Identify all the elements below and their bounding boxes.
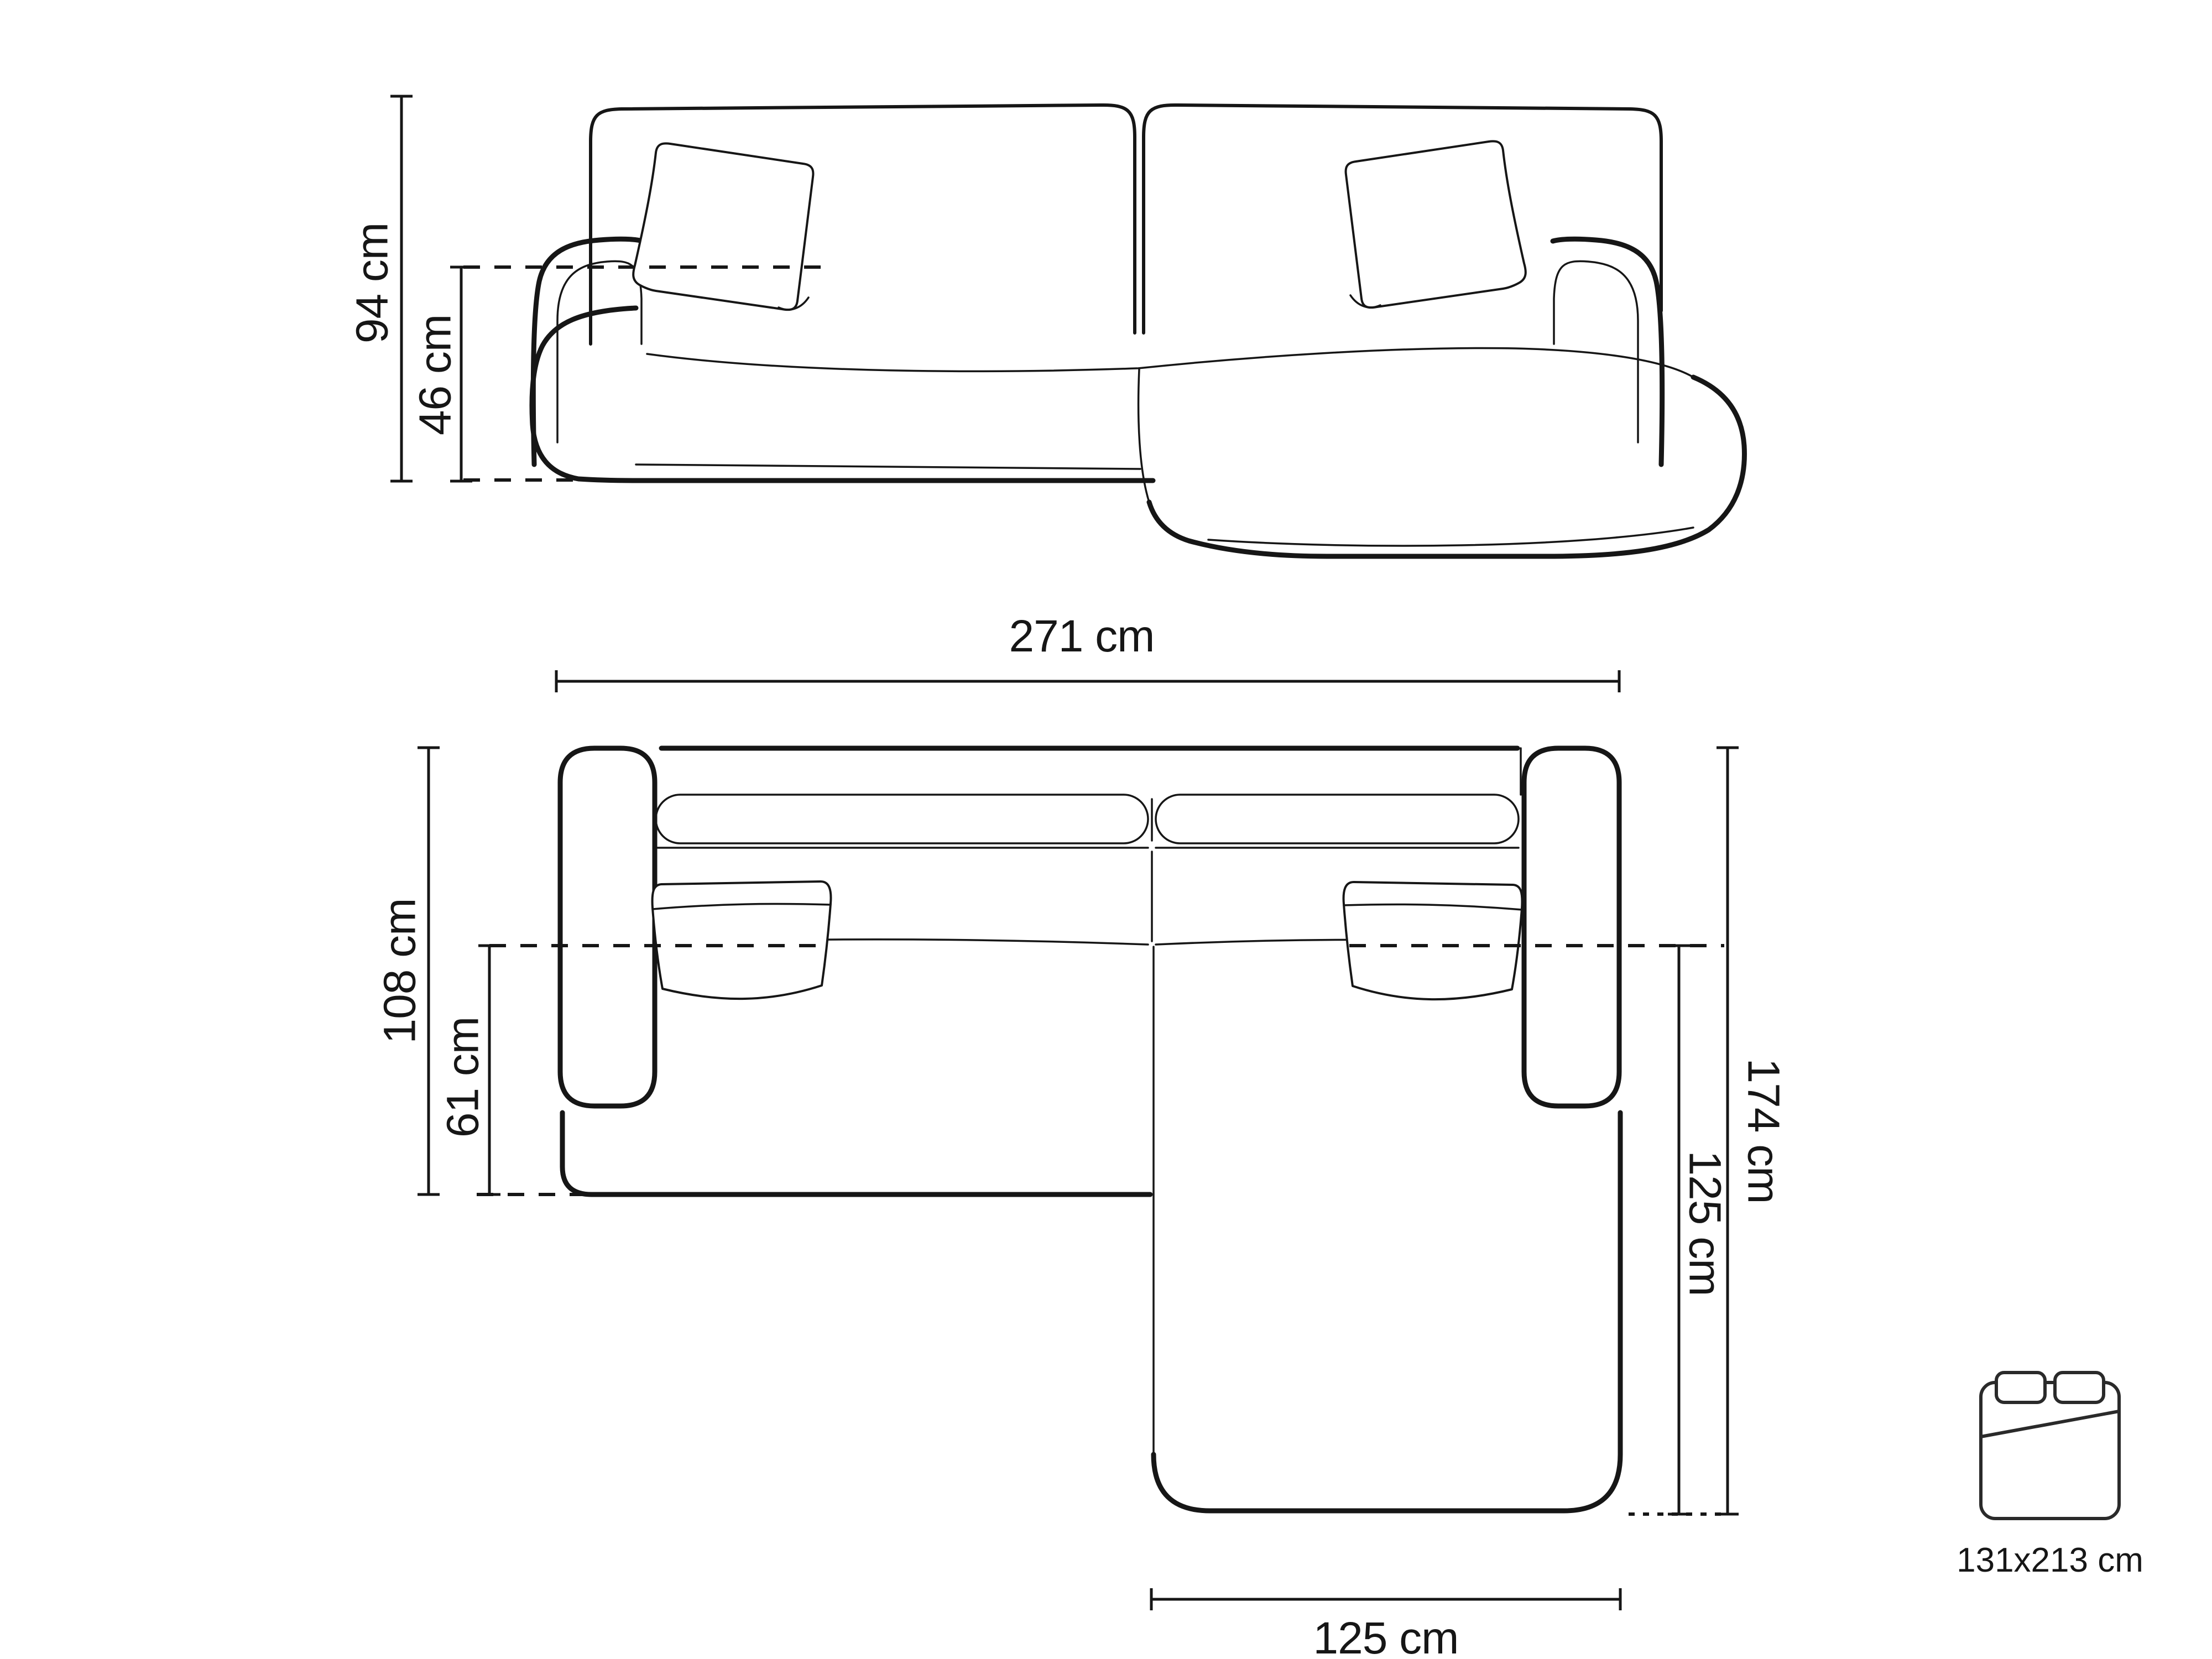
dimension-chaise-width: 125 cm: [1151, 1588, 1620, 1659]
total-width-label: 271 cm: [1009, 611, 1155, 661]
top-pillow-left: [653, 881, 831, 999]
sleeping-area-label: 131x213 cm: [1957, 1541, 2143, 1579]
armrest-left-inner: [557, 261, 641, 442]
sofa-dimension-diagram: 94 cm 46 cm: [0, 0, 2212, 1659]
top-armrest-right: [1524, 748, 1619, 1106]
top-chaise-outline: [1154, 1113, 1620, 1511]
dimension-chaise-inner-length: 125 cm: [1629, 946, 1730, 1514]
armrest-right-inner: [1554, 261, 1638, 442]
top-headrest-left: [656, 795, 1148, 843]
bed-pillow-left: [1996, 1373, 2045, 1402]
left-depth-label: 108 cm: [375, 899, 425, 1044]
seat-depth-label: 61 cm: [438, 1017, 488, 1138]
sofa-dimension-diagram-page: 94 cm 46 cm: [0, 0, 2212, 1659]
chaise-top-edge: [1138, 348, 1693, 377]
dimension-chaise-total-depth: 174 cm: [1717, 748, 1788, 1514]
seat-top-edge: [647, 354, 1137, 371]
chaise-plinth-seam: [1208, 528, 1693, 546]
armrest-left-outer: [533, 239, 643, 465]
bed-icon: [1981, 1373, 2119, 1519]
top-headrest-right: [1156, 795, 1519, 843]
pillow-left: [633, 143, 813, 310]
dimension-left-depth: 108 cm: [375, 748, 440, 1194]
top-view: 271 cm 108 cm 61 cm 174 cm 125 cm 125 cm: [375, 611, 1789, 1659]
top-front-edge-left: [562, 1113, 1150, 1194]
bed-pillow-right: [2055, 1373, 2104, 1402]
chaise-width-label: 125 cm: [1313, 1613, 1459, 1659]
top-armrest-left: [560, 748, 655, 1106]
pillow-right: [1346, 141, 1526, 307]
bed-duvet-fold: [1981, 1411, 2119, 1437]
chaise-outline: [1149, 377, 1744, 556]
top-pillow-right: [1344, 882, 1522, 999]
front-sofa-drawing: [532, 105, 1744, 556]
seat-plinth-seam: [636, 465, 1140, 469]
seat-height-label: 46 cm: [410, 315, 461, 435]
chaise-inner-length-label: 125 cm: [1679, 1151, 1730, 1296]
sleeping-function: 131x213 cm: [1957, 1373, 2143, 1579]
chaise-total-depth-label: 174 cm: [1738, 1058, 1788, 1204]
dimension-seat-depth: 61 cm: [438, 946, 1724, 1194]
total-height-label: 94 cm: [347, 223, 398, 343]
dimension-total-height: 94 cm: [347, 96, 413, 481]
seat-left-outline: [532, 308, 636, 481]
top-sofa-drawing: [560, 748, 1620, 1511]
front-view: 94 cm 46 cm: [347, 96, 1745, 556]
dimension-total-width: 271 cm: [556, 611, 1619, 692]
